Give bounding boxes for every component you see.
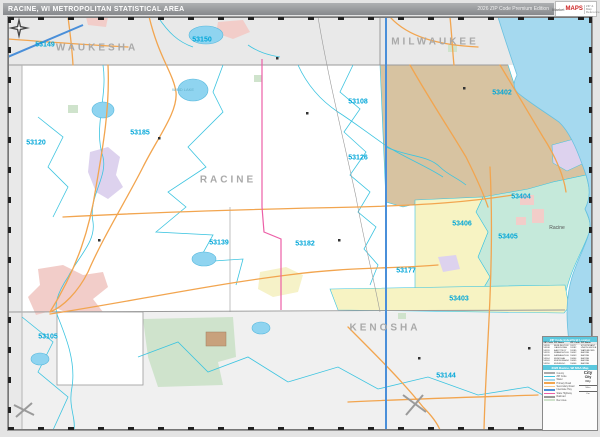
legend-swatch	[544, 376, 555, 378]
title-bar: RACINE, WI METROPOLITAN STATISTICAL AREA…	[3, 3, 554, 15]
green-patch-2	[254, 75, 262, 82]
brand-word-1: Market	[552, 7, 564, 12]
city-sample-small: City	[579, 379, 597, 383]
brand-tagline: ZIP & Map Reference	[584, 5, 600, 14]
legend-swatch	[544, 372, 555, 374]
brand-logo: Market MAPS ZIP & Map Reference	[555, 1, 597, 17]
map-artwork	[8, 17, 592, 430]
legend-swatch	[544, 386, 555, 388]
legend-box[interactable]: ZIP Code Index/Grid Locator ZIP CodeZIP …	[542, 336, 598, 431]
brand-word-2: MAPS	[566, 6, 583, 12]
map-page: RACINE, WI METROPOLITAN STATISTICAL AREA…	[0, 0, 600, 437]
legend-items: CountyZIP CodeWaterPrimary RoadSecondary…	[543, 370, 579, 403]
legend-item-label: Rec Area	[557, 399, 567, 402]
urban-racine-2	[532, 209, 544, 223]
legend-swatch	[544, 399, 555, 401]
landmark-box	[206, 332, 226, 346]
map-canvas[interactable]: WAUKESHAMILWAUKEERACINEKENOSHA5314953150…	[8, 17, 592, 430]
zip-index-table: ZIP CodeZIP NameZIP CodeZIP Name 53105BU…	[543, 342, 597, 365]
legend-swatch	[544, 379, 555, 381]
map-title: RACINE, WI METROPOLITAN STATISTICAL AREA	[8, 6, 185, 13]
urban-racine-3	[516, 217, 526, 225]
zip-area-53403	[330, 285, 569, 313]
edition-label: 2026 ZIP Code Premium Edition	[477, 6, 549, 12]
legend-item: Rec Area	[544, 398, 578, 401]
zip-box-53105	[57, 312, 143, 385]
legend-swatch	[544, 393, 555, 395]
scale-bar-km: Km	[579, 391, 597, 395]
legend-swatch	[544, 382, 555, 384]
legend-swatch	[544, 396, 555, 398]
legend-city-samples: City City City Miles Km	[579, 370, 597, 403]
legend-swatch	[544, 389, 555, 391]
urban-racine-1	[520, 195, 534, 205]
green-patch-4	[398, 313, 406, 319]
county-fill-west	[8, 65, 22, 430]
green-patch-1	[68, 105, 78, 113]
scale-bar-miles: Miles	[579, 385, 597, 389]
